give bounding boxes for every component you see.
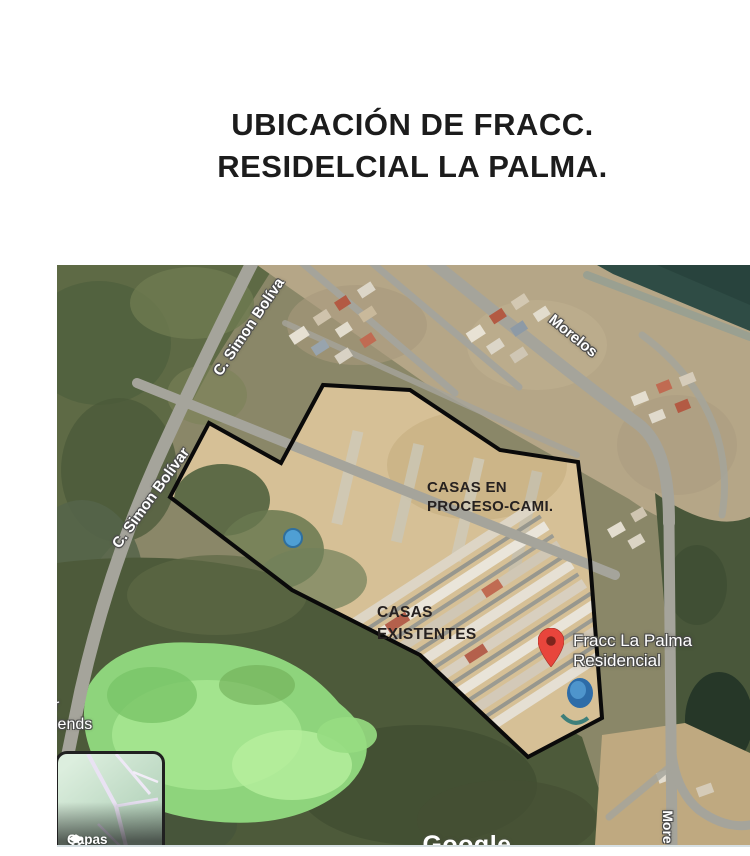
street-label-morelos-bottom: More xyxy=(660,810,676,843)
edge-cutoff-label: r iends xyxy=(57,696,92,734)
edge-cutoff-line2: iends xyxy=(57,715,92,734)
layers-icon xyxy=(67,832,85,847)
zone-existing-line2: EXISTENTES xyxy=(377,624,476,646)
google-watermark: Google xyxy=(422,831,511,847)
zone-in-progress-line2: PROCESO-CAMI. xyxy=(427,497,553,516)
zone-in-progress-line1: CASAS EN xyxy=(427,478,553,497)
zone-label-existing: CASAS EXISTENTES xyxy=(377,602,476,646)
zone-label-in-progress: CASAS EN PROCESO-CAMI. xyxy=(427,478,553,516)
map-pin-icon xyxy=(538,628,564,667)
edge-cutoff-line1: r xyxy=(57,696,92,715)
zone-existing-line1: CASAS xyxy=(377,602,476,624)
page-title-line1: UBICACIÓN DE FRACC. xyxy=(75,104,750,146)
place-label-line2: Residencial xyxy=(573,651,692,671)
page-title: UBICACIÓN DE FRACC. RESIDELCIAL LA PALMA… xyxy=(75,104,750,188)
document-page: { "page": { "title_line1": "UBICACIÓN DE… xyxy=(0,0,750,856)
place-label: Fracc La Palma Residencial xyxy=(573,631,692,671)
map-image: Fracc La Palma Residencial CASAS EN PROC… xyxy=(57,265,750,847)
place-label-line1: Fracc La Palma xyxy=(573,631,692,651)
page-title-line2: RESIDELCIAL LA PALMA. xyxy=(75,146,750,188)
layers-button[interactable]: Capas xyxy=(57,751,165,847)
